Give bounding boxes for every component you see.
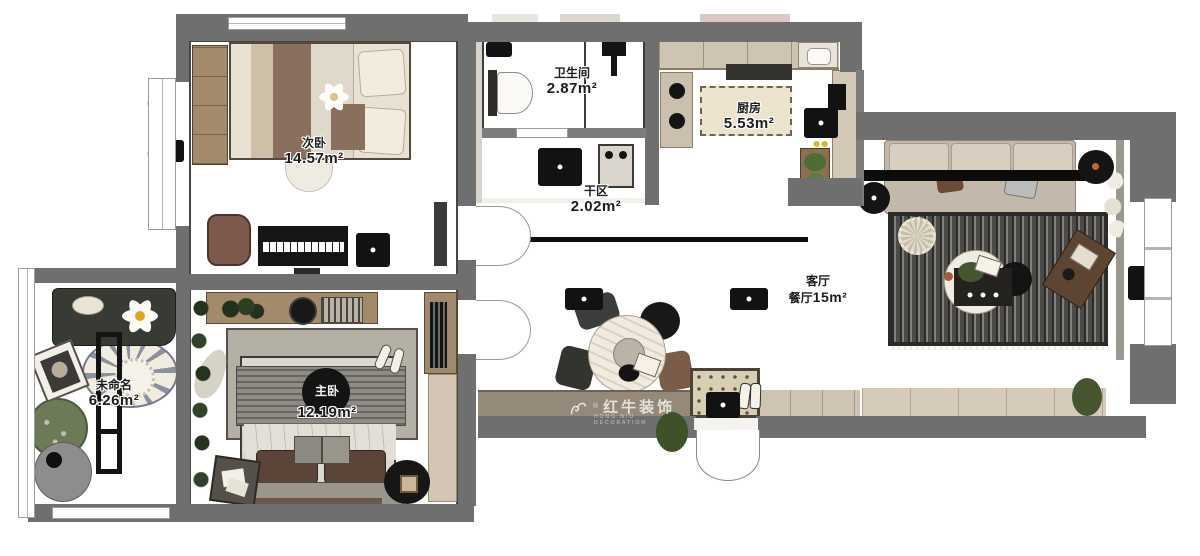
room-name: 干区	[571, 184, 622, 198]
wall-segment	[176, 274, 190, 522]
window-left-column	[18, 268, 35, 518]
wall-segment	[28, 268, 178, 283]
room-label-master-bedroom: 主卧 12.19m²	[297, 384, 356, 422]
wall-segment	[458, 40, 476, 206]
room-name: 主卧	[297, 384, 356, 398]
shelf-pot	[289, 297, 317, 325]
terracotta-pot	[944, 272, 953, 281]
plant-bottom-right	[1072, 378, 1102, 416]
speaker-dot	[371, 248, 376, 253]
room-label-dry-area: 干区 2.02m²	[571, 184, 622, 216]
room-name-line2: 餐厅15m²	[789, 288, 848, 306]
wall-segment	[840, 22, 862, 72]
table-cup	[1060, 266, 1077, 283]
bull-logo-icon	[568, 398, 588, 416]
toilet-tank	[488, 70, 497, 116]
window-line	[162, 79, 163, 229]
pillow-gray	[294, 436, 322, 464]
master-cabinet-right	[428, 374, 457, 502]
pouf	[72, 296, 104, 315]
wall-segment	[788, 178, 862, 206]
runner-divider	[101, 429, 117, 434]
watermark-subtext: HONG NIU DECORATION	[594, 414, 675, 426]
burner	[819, 121, 824, 126]
room-area: 12.19m²	[297, 404, 356, 422]
wall-segment	[458, 260, 476, 300]
entry-threshold	[694, 418, 758, 430]
rug-fringe	[892, 346, 1104, 350]
washer-knob	[605, 151, 613, 159]
speaker-box	[356, 233, 390, 267]
plant-leaves	[804, 153, 826, 171]
toilet-bowl	[497, 72, 533, 114]
vine-plant	[191, 296, 211, 500]
wardrobe	[192, 45, 228, 165]
bed-pillow	[357, 48, 406, 97]
register-dot	[582, 297, 587, 302]
washing-machine	[598, 144, 634, 188]
wall-segment	[176, 40, 189, 82]
range-hood	[726, 64, 792, 80]
wall-segment	[458, 354, 476, 506]
washer-knob	[619, 151, 627, 159]
wall-segment	[176, 274, 468, 290]
floor-register	[565, 288, 603, 310]
window-bottom-left	[52, 507, 170, 519]
shoe-cabinet-right	[758, 390, 860, 418]
wall-segment	[856, 416, 1146, 438]
window-balcony-right	[1144, 198, 1172, 346]
ceiling-beam-line	[528, 237, 808, 242]
room-label-kitchen: 厨房 5.53m²	[724, 101, 775, 133]
coffee-machine	[828, 84, 846, 110]
side-table-right	[1078, 150, 1114, 184]
window-line	[27, 269, 28, 517]
paper	[225, 478, 248, 497]
tray-dot	[981, 293, 986, 298]
console-bar	[862, 170, 1090, 181]
floor-plan: 次卧 14.57m² 卫生间 2.87m² 厨房 5.53m² 干区 2.02m…	[0, 0, 1200, 556]
shelf-speaker	[321, 297, 363, 323]
table-items	[1069, 243, 1099, 271]
wall-segment	[178, 504, 474, 522]
flower-center	[330, 93, 338, 101]
register-dot	[747, 297, 752, 302]
kitchen-cabinet-left	[660, 72, 693, 148]
dining-table	[588, 315, 666, 393]
kitchen-sink-unit	[798, 42, 838, 68]
bowl	[669, 83, 685, 99]
sink-drain	[558, 165, 563, 170]
wall-segment	[1130, 344, 1176, 404]
room-name: 卫生间	[547, 66, 598, 80]
wall-segment	[756, 416, 858, 438]
flower-cushion	[319, 82, 349, 112]
candle	[1092, 163, 1099, 170]
side-table-decor	[872, 196, 877, 201]
room-area: 2.87m²	[547, 80, 598, 98]
pillow-gray	[322, 436, 350, 464]
wall-segment	[645, 40, 659, 205]
tray-dot	[993, 293, 998, 298]
shelf-plant	[215, 297, 267, 321]
room-name: 客厅	[789, 274, 848, 288]
shower-arm	[611, 56, 617, 76]
bottom-cabinet-right	[862, 388, 1106, 418]
dark-mat	[209, 455, 261, 507]
stove	[804, 108, 838, 138]
sink-basin	[807, 48, 831, 65]
tall-cabinet	[434, 202, 447, 266]
armchair	[207, 214, 251, 266]
window-top-left	[228, 17, 346, 30]
shower-head	[602, 42, 626, 56]
daisy-center	[135, 311, 145, 321]
radiator	[430, 302, 447, 368]
watermark: ® 红牛装饰 HONG NIU DECORATION	[568, 396, 675, 417]
room-name: 次卧	[284, 136, 343, 150]
room-area: 5.53m²	[724, 115, 775, 133]
room-area: 14.57m²	[284, 150, 343, 168]
room-name: 厨房	[724, 101, 775, 115]
window-left-bedroom	[148, 78, 176, 230]
room-area: 2.02m²	[571, 198, 622, 216]
window-line	[1145, 297, 1171, 300]
bed-sheet	[251, 44, 273, 158]
vanity-sink	[538, 148, 582, 186]
entry-box-dot	[721, 403, 726, 408]
coffee-table-tray	[954, 268, 1012, 306]
rattan-chair	[898, 217, 936, 255]
window-line	[229, 23, 345, 24]
room-label-unnamed: 未命名 6.26m²	[89, 378, 140, 410]
wall-segment	[458, 22, 860, 42]
wall-segment	[1130, 112, 1176, 202]
bowl	[669, 113, 685, 129]
room-name: 未命名	[89, 378, 140, 392]
bathroom-door	[516, 128, 568, 138]
room-area: 6.26m²	[89, 392, 140, 410]
wall-segment	[856, 112, 1146, 140]
round-black-rug	[384, 460, 430, 504]
black-ball	[46, 452, 62, 468]
entry-door	[696, 430, 760, 481]
tray-dot	[968, 293, 973, 298]
piano-keys	[262, 242, 344, 252]
piano	[258, 226, 348, 266]
floor-register	[730, 288, 768, 310]
shoe	[750, 383, 762, 409]
lemons	[812, 140, 830, 148]
room-label-secondary-bedroom: 次卧 14.57m²	[284, 136, 343, 168]
room-label-living-dining: 客厅 餐厅15m²	[789, 274, 848, 306]
window-line	[1145, 247, 1171, 250]
bean-bag	[34, 442, 92, 502]
room-label-bathroom: 卫生间 2.87m²	[547, 66, 598, 98]
desk-shelf	[206, 292, 378, 324]
entry-box	[706, 392, 740, 418]
rug-motif	[400, 475, 418, 493]
bathroom-cabinet	[486, 42, 512, 57]
registered-mark: ®	[593, 403, 598, 410]
daisy-pillow	[122, 298, 158, 334]
